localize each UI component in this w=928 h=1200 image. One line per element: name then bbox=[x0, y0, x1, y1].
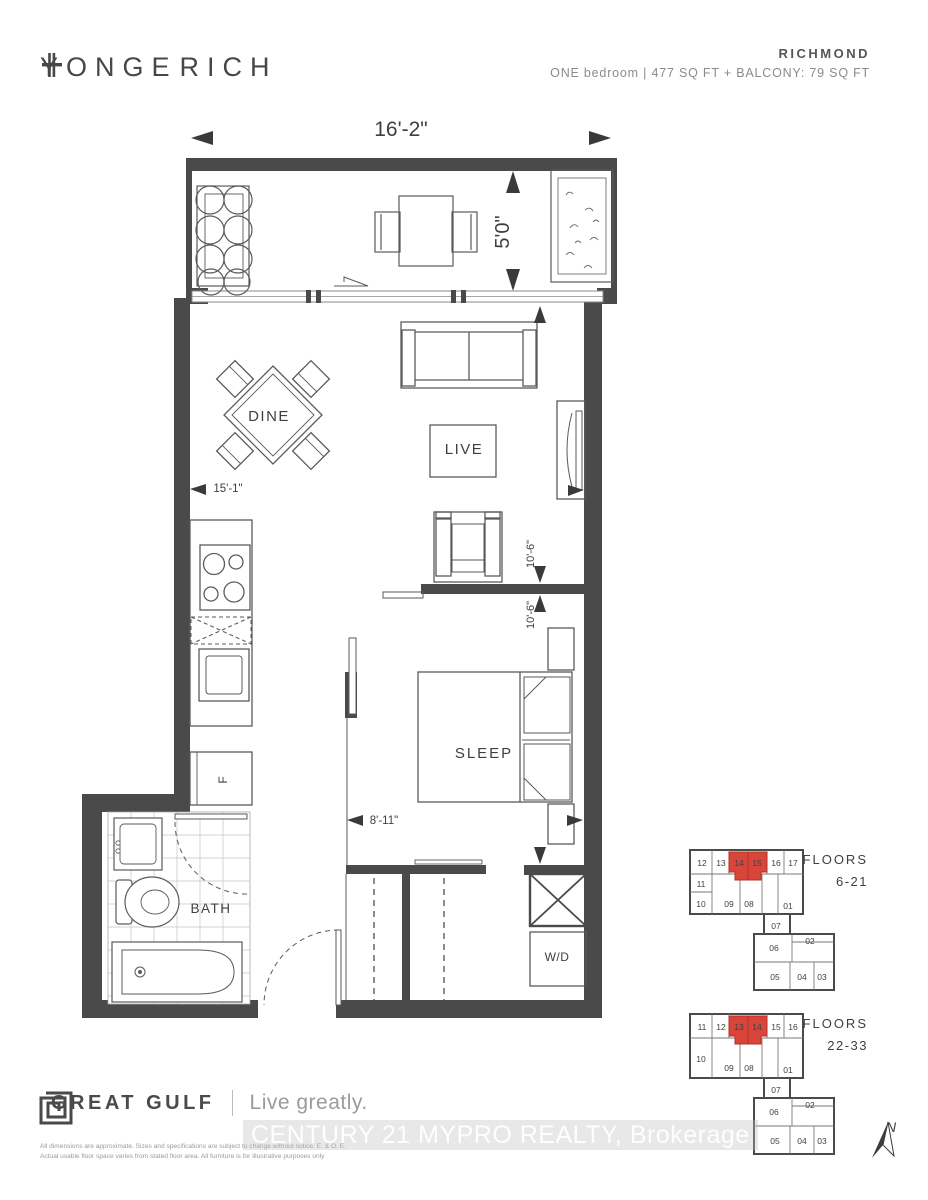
entry-door bbox=[264, 930, 341, 1005]
dishwasher bbox=[191, 617, 251, 644]
brand-tagline: Live greatly. bbox=[250, 1091, 368, 1115]
closet-slider bbox=[415, 860, 482, 864]
kp2-unit: 11 bbox=[698, 1022, 707, 1032]
kp2-unit: 06 bbox=[769, 1107, 779, 1117]
kp2-unit: 04 bbox=[797, 1136, 807, 1146]
kp1-unit: 12 bbox=[697, 858, 707, 868]
disclaimer-line-2: Actual usable floor space varies from st… bbox=[40, 1152, 346, 1162]
footer-brand: GREAT GULF Live greatly. bbox=[38, 1090, 368, 1116]
tv-console bbox=[557, 401, 585, 499]
kp2-unit: 12 bbox=[716, 1022, 726, 1032]
ledge bbox=[383, 592, 423, 598]
kp1-unit: 02 bbox=[805, 936, 815, 946]
kp1-unit: 17 bbox=[788, 858, 798, 868]
keyplan-floors-6-21: 12 13 14 15 16 17 11 10 09 08 01 07 06 0… bbox=[690, 850, 868, 990]
kp1-unit: 10 bbox=[696, 899, 706, 909]
kp2-unit: 03 bbox=[817, 1136, 827, 1146]
footer-divider bbox=[232, 1090, 233, 1116]
balcony-table-set bbox=[375, 196, 477, 266]
kp1-unit: 04 bbox=[797, 972, 807, 982]
bed bbox=[418, 672, 572, 802]
kp2-unit: 16 bbox=[788, 1022, 798, 1032]
window-wall bbox=[192, 290, 603, 303]
outdoor-sofa bbox=[196, 186, 252, 295]
label-sleep: SLEEP bbox=[455, 745, 513, 762]
kp2-unit: 15 bbox=[771, 1022, 781, 1032]
sofa bbox=[401, 322, 537, 388]
kp2-unit: 02 bbox=[805, 1100, 815, 1110]
bath-sink bbox=[114, 818, 162, 870]
sink bbox=[199, 649, 249, 701]
kp1-unit: 07 bbox=[771, 921, 781, 931]
kp2-unit-highlight: 13 bbox=[734, 1022, 744, 1032]
kp1-unit: 16 bbox=[771, 858, 781, 868]
kp2-unit-highlight: 14 bbox=[752, 1022, 762, 1032]
kp2-unit: 08 bbox=[744, 1063, 754, 1073]
kp1-unit: 09 bbox=[724, 899, 734, 909]
kp1-unit-highlight: 14 bbox=[734, 858, 744, 868]
kp1-floors-range: 6-21 bbox=[836, 874, 868, 889]
stove bbox=[200, 545, 250, 610]
kp2-unit: 01 bbox=[783, 1065, 793, 1075]
kp2-unit: 10 bbox=[696, 1054, 706, 1064]
label-live: LIVE bbox=[445, 441, 484, 458]
kp1-unit: 03 bbox=[817, 972, 827, 982]
kp1-floors-word: FLOORS bbox=[803, 852, 868, 867]
toilet bbox=[116, 877, 179, 927]
kp2-unit: 07 bbox=[771, 1085, 781, 1095]
kp2-unit: 05 bbox=[770, 1136, 780, 1146]
kp1-unit: 13 bbox=[716, 858, 726, 868]
kp2-floors-range: 22-33 bbox=[827, 1038, 868, 1053]
kp1-unit-highlight: 15 bbox=[752, 858, 762, 868]
kp1-unit: 08 bbox=[744, 899, 754, 909]
north-arrow: N bbox=[872, 1119, 897, 1158]
floorplan-page: YONGE RICH RICHMOND ONE bedroom | 477 SQ… bbox=[0, 0, 928, 1200]
label-bath: BATH bbox=[190, 901, 231, 916]
closets bbox=[264, 860, 482, 1005]
kp2-unit: 09 bbox=[724, 1063, 734, 1073]
kp1-unit: 05 bbox=[770, 972, 780, 982]
nightstand-top bbox=[548, 628, 574, 670]
bathtub bbox=[112, 942, 242, 1002]
kp1-unit: 11 bbox=[697, 879, 706, 889]
dim-bedroom-width: 10'-6" bbox=[525, 601, 537, 629]
armchair bbox=[434, 512, 502, 582]
label-dine: DINE bbox=[248, 408, 290, 425]
shaft bbox=[530, 874, 586, 926]
kitchen bbox=[190, 520, 252, 805]
label-fridge: F bbox=[216, 776, 230, 783]
kp1-unit: 06 bbox=[769, 943, 779, 953]
floorplan-drawing: DINE LIVE SLEEP BATH W/D F 16'-2" 5 bbox=[0, 0, 928, 1200]
kp2-floors-word: FLOORS bbox=[803, 1016, 868, 1031]
brokerage-watermark: CENTURY 21 MYPRO REALTY, Brokerage bbox=[243, 1120, 758, 1150]
dim-bedroom-length: 8'-11" bbox=[370, 815, 398, 827]
brand-name: GREAT GULF bbox=[51, 1092, 215, 1115]
balcony bbox=[196, 170, 613, 295]
dim-living-width: 10'-6" bbox=[525, 540, 537, 568]
threshold-marker bbox=[334, 277, 368, 286]
planter bbox=[551, 170, 613, 282]
laundry bbox=[530, 874, 586, 986]
kp1-unit: 01 bbox=[783, 901, 793, 911]
dim-balcony-depth: 5'0" bbox=[492, 215, 514, 248]
dim-overall-width: 16'-2" bbox=[374, 118, 428, 141]
label-wd: W/D bbox=[545, 950, 570, 964]
dim-living-length: 15'-1" bbox=[213, 483, 242, 495]
